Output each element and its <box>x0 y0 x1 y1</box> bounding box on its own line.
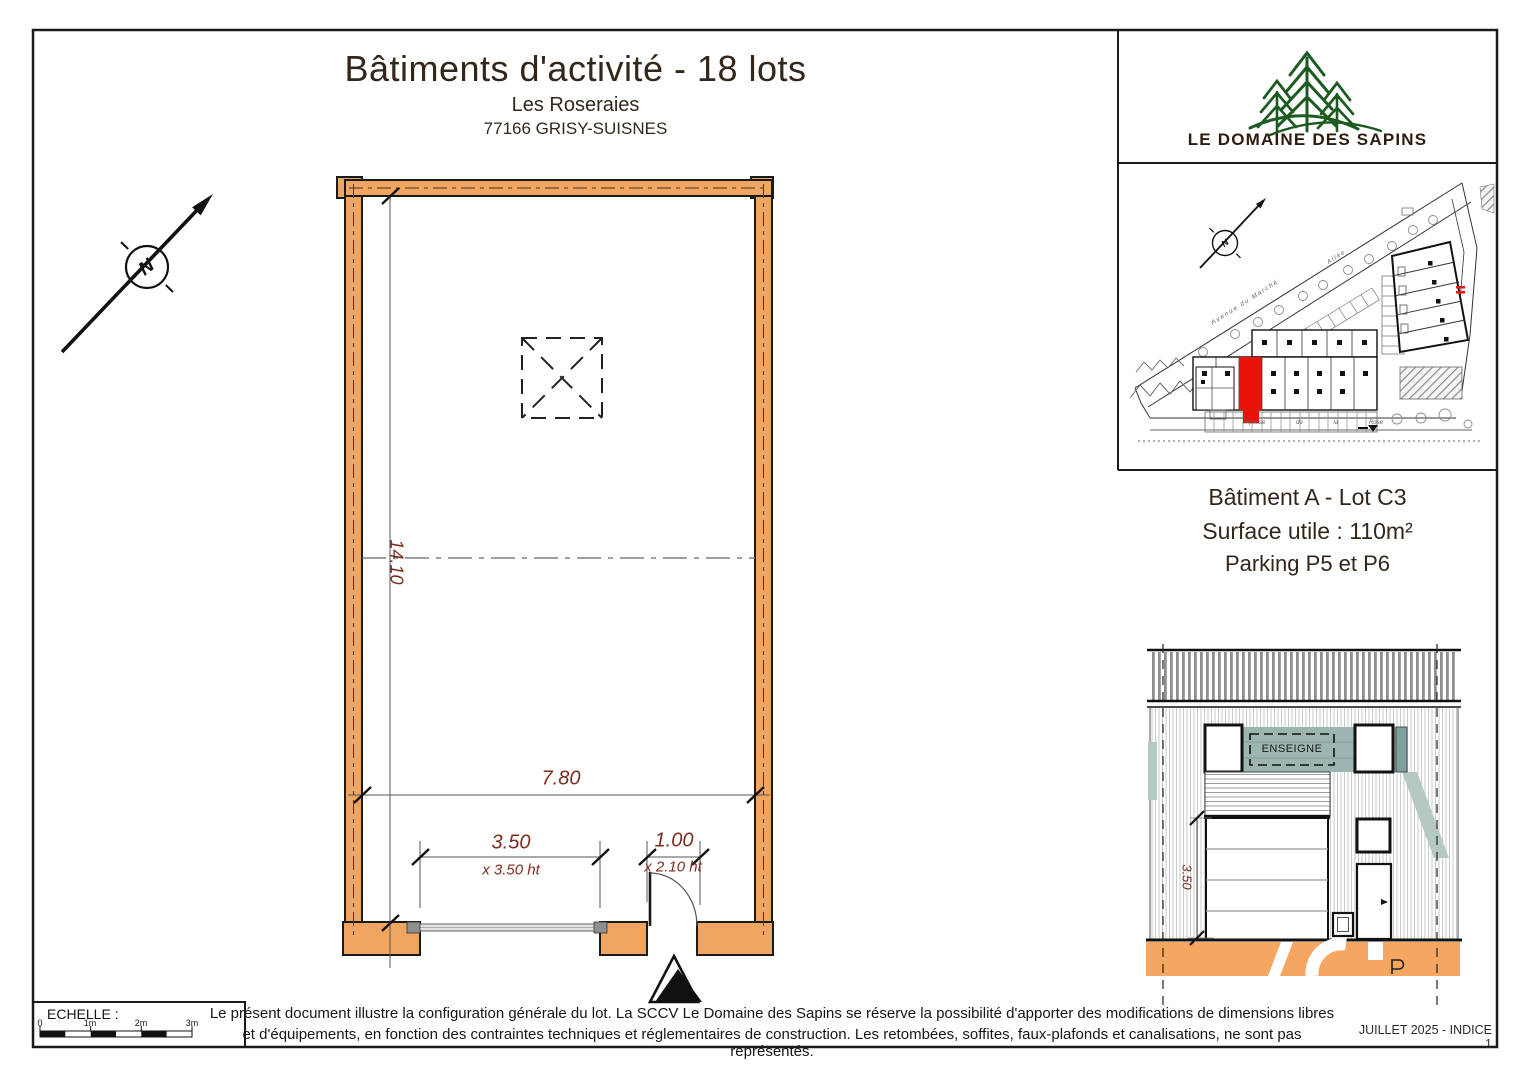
site-plan-inset <box>1130 183 1494 441</box>
elevation-height-label: 3.50 <box>1180 864 1195 889</box>
page-title: Bâtiments d'activité - 18 lots <box>33 48 1118 90</box>
skylight-symbol <box>522 338 602 418</box>
lot-title: Bâtiment A - Lot C3 <box>1118 484 1497 511</box>
issue-date-label: JUILLET 2025 - INDICE 1 <box>1352 1023 1492 1051</box>
sign-label: ENSEIGNE <box>1262 743 1323 755</box>
north-arrow-icon <box>62 194 213 352</box>
entry-door-plan <box>650 872 697 926</box>
scale-tick-3m: 3m <box>186 1018 199 1028</box>
impasse-word: Rose <box>1369 420 1383 426</box>
scale-tick-2m: 2m <box>135 1018 148 1028</box>
plan-dimensions <box>348 188 770 968</box>
dim-door-width-label: 1.00 <box>655 830 694 853</box>
elevation-garage-door <box>1206 818 1328 940</box>
page-address: 77166 GRISY-SUISNES <box>33 119 1118 139</box>
plan-sheet: Bâtiments d'activité - 18 lots Les Roser… <box>0 0 1529 1080</box>
pine-trees-icon <box>1250 53 1381 135</box>
impasse-word: impasse <box>1243 420 1265 426</box>
scale-bar <box>40 1026 192 1037</box>
highlighted-lot <box>1239 357 1262 423</box>
dim-height-label: 14.10 <box>386 539 407 584</box>
garage-door-plan <box>407 922 607 933</box>
dim-garage-width-label: 3.50 <box>492 832 531 855</box>
elevation-small-window <box>1357 819 1390 852</box>
lot-parking: Parking P5 et P6 <box>1118 551 1497 577</box>
dim-door-height-label: x 2.10 ht <box>644 859 702 876</box>
disclaimer-line-1: Le présent document illustre la configur… <box>207 1005 1337 1022</box>
scale-tick-0: 0 <box>37 1018 42 1028</box>
inset-north-arrow-icon <box>1200 198 1266 268</box>
impasse-word: la <box>1334 420 1339 426</box>
disclaimer-line-2: et d'équipements, en fonction des contra… <box>207 1026 1337 1060</box>
impasse-word: de <box>1296 420 1303 426</box>
dim-garage-height-label: x 3.50 ht <box>482 862 540 879</box>
elevation-window-left <box>1205 725 1242 772</box>
entrance-marker-icon <box>650 956 702 1002</box>
elevation-window-right <box>1355 725 1393 772</box>
lot-surface: Surface utile : 110m² <box>1118 518 1497 545</box>
page-subtitle: Les Roseraies <box>33 94 1118 117</box>
elevation-drawing <box>1146 644 1462 1006</box>
street-impasse-label: impasse de la Rose <box>1243 420 1383 426</box>
dim-width-label: 7.80 <box>542 768 581 791</box>
scale-tick-1m: 1m <box>84 1018 97 1028</box>
logo-label: LE DOMAINE DES SAPINS <box>1118 130 1497 150</box>
